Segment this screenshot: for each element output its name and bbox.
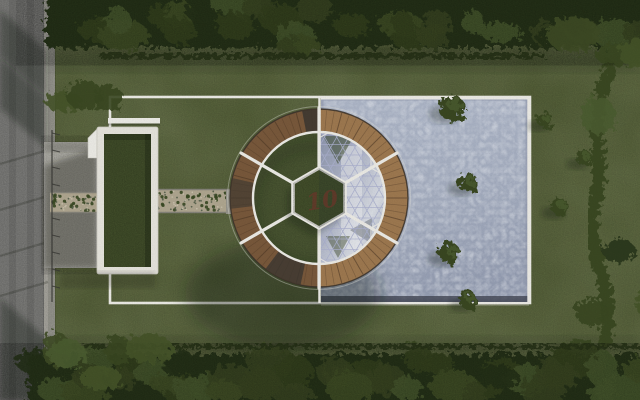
aerial-render-stage: 10 <box>0 0 640 400</box>
film-grain <box>0 0 640 400</box>
aerial-render: 10 <box>0 0 640 400</box>
